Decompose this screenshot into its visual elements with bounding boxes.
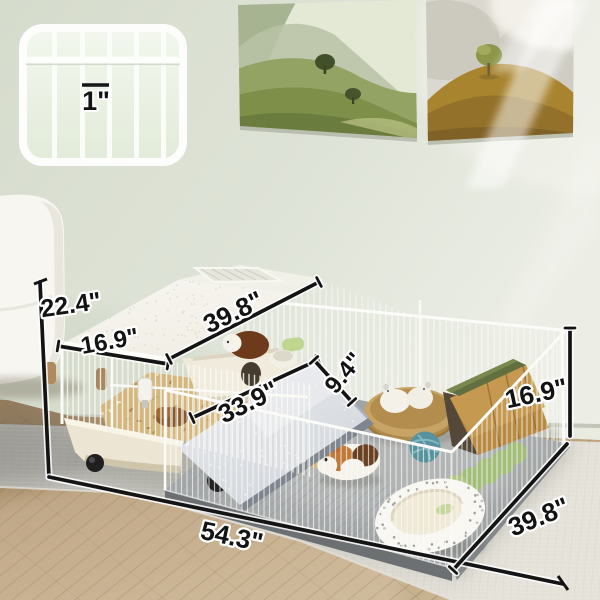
svg-text:1": 1" (82, 86, 110, 116)
